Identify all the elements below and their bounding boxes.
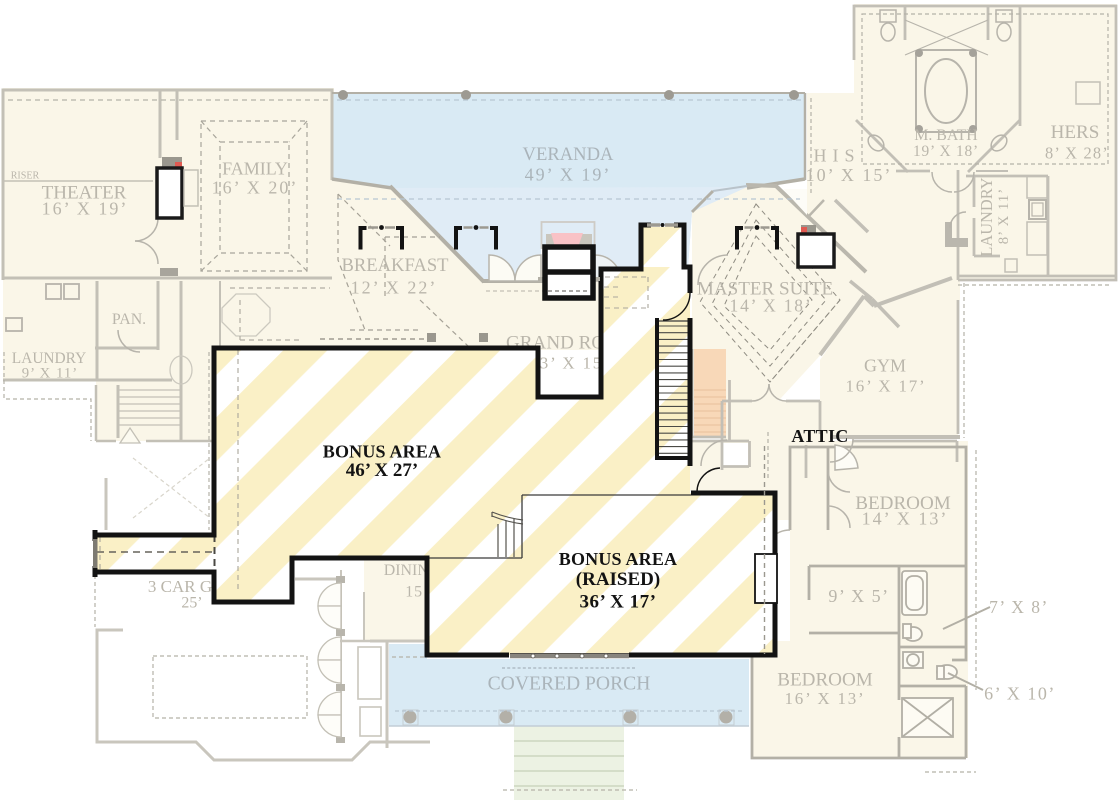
svg-text:BEDROOM: BEDROOM — [777, 670, 873, 691]
svg-text:6’ X 10’: 6’ X 10’ — [984, 684, 1056, 704]
svg-text:3 CAR G: 3 CAR G — [148, 577, 212, 596]
svg-text:8’ X 11’: 8’ X 11’ — [996, 188, 1012, 245]
svg-text:14’ X 18’: 14’ X 18’ — [730, 296, 813, 316]
svg-text:19’ X 18’: 19’ X 18’ — [913, 143, 979, 160]
svg-text:RISER: RISER — [11, 171, 40, 182]
svg-text:BONUS AREA: BONUS AREA — [323, 442, 442, 462]
svg-text:10’ X 15’: 10’ X 15’ — [806, 165, 893, 185]
svg-text:13’ X 15’: 13’ X 15’ — [529, 354, 610, 373]
svg-text:FAMILY: FAMILY — [222, 159, 288, 179]
svg-text:BONUS AREA: BONUS AREA — [559, 549, 678, 569]
svg-text:14’ X 13’: 14’ X 13’ — [862, 509, 949, 529]
svg-text:12’ X 22’: 12’ X 22’ — [351, 278, 438, 298]
svg-text:COVERED PORCH: COVERED PORCH — [488, 674, 651, 695]
svg-text:VERANDA: VERANDA — [523, 144, 614, 165]
svg-text:49’ X 19’: 49’ X 19’ — [525, 165, 612, 185]
svg-text:7’ X 8’: 7’ X 8’ — [989, 597, 1049, 617]
svg-text:9’ X 11’: 9’ X 11’ — [22, 366, 79, 382]
svg-text:GYM: GYM — [864, 356, 906, 376]
svg-text:36’ X 17’: 36’ X 17’ — [580, 592, 657, 613]
svg-text:LAUNDRY: LAUNDRY — [977, 177, 996, 256]
svg-text:PAN.: PAN. — [112, 311, 146, 328]
svg-text:HIS: HIS — [813, 146, 860, 166]
svg-text:46’ X 27’: 46’ X 27’ — [346, 460, 418, 481]
svg-text:16’ X 13’: 16’ X 13’ — [784, 689, 865, 708]
svg-text:16’ X 17’: 16’ X 17’ — [845, 377, 926, 396]
svg-text:HERS: HERS — [1051, 122, 1100, 143]
svg-text:16’ X 20’: 16’ X 20’ — [212, 178, 299, 198]
svg-text:M. BATH: M. BATH — [914, 127, 978, 144]
svg-text:(RAISED): (RAISED) — [576, 569, 660, 590]
svg-text:8’ X 28’: 8’ X 28’ — [1045, 144, 1109, 163]
svg-text:LAUNDRY: LAUNDRY — [12, 350, 86, 367]
svg-text:ATTIC: ATTIC — [791, 426, 848, 446]
svg-text:BREAKFAST: BREAKFAST — [341, 255, 449, 276]
svg-text:25’: 25’ — [181, 595, 202, 612]
svg-text:16’ X 19’: 16’ X 19’ — [42, 199, 129, 219]
svg-text:9’ X 5’: 9’ X 5’ — [828, 586, 889, 606]
